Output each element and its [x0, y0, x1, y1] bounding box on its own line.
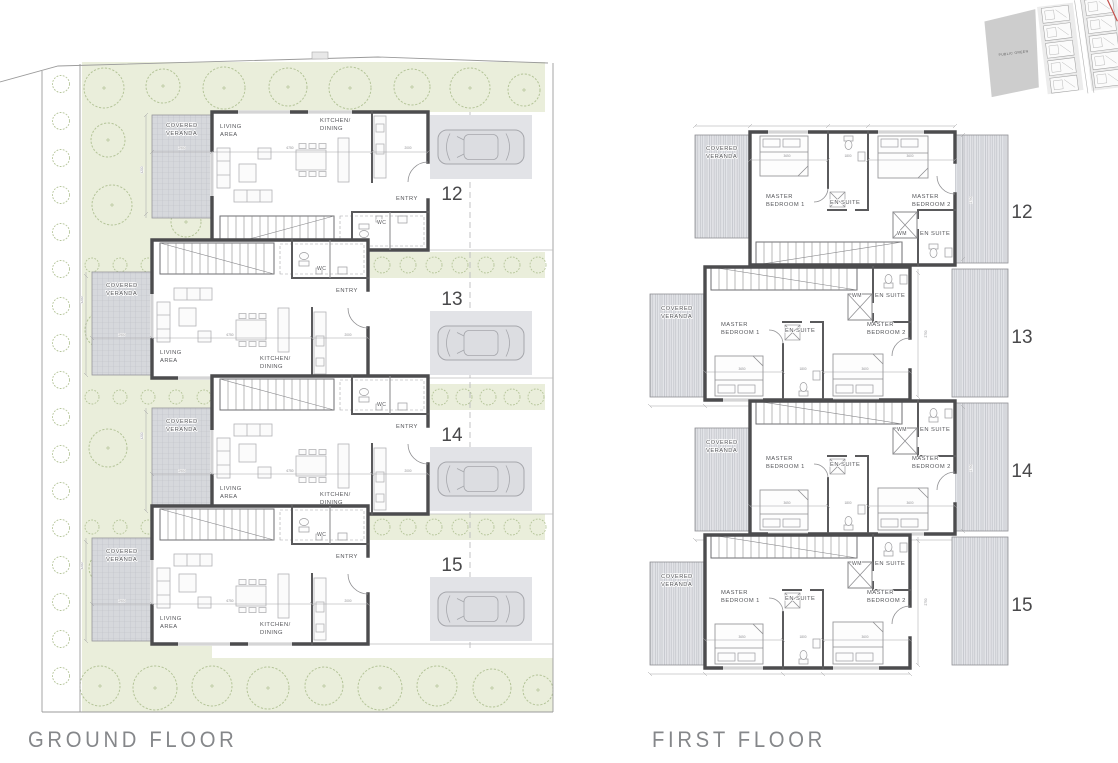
veranda-label: VERANDA: [106, 291, 137, 297]
bush-glyph: [53, 446, 70, 463]
map-building: [1091, 51, 1118, 70]
wc-label: WC: [317, 266, 326, 272]
car-icon: [438, 462, 524, 496]
bush-glyph: [53, 76, 70, 93]
master-bedroom1-label: MASTER: [721, 590, 748, 596]
veranda-label: VERANDA: [661, 314, 692, 320]
living-area-label: AREA: [160, 358, 178, 364]
dimension-label: 3600: [906, 154, 913, 158]
ff-unit: COVEREDVERANDAMASTERBEDROOM 1EN SUITEMAS…: [648, 267, 1033, 408]
balcony-deck: [952, 537, 1008, 665]
living-area-label: LIVING: [220, 486, 242, 492]
washing-machine-label: WM: [852, 293, 862, 299]
wc-label: WC: [377, 220, 386, 226]
veranda-label: COVERED: [706, 146, 738, 152]
hedge-strip: [370, 252, 545, 278]
ensuite-label: EN SUITE: [785, 328, 815, 334]
first-floor-units: COVEREDVERANDAMASTERBEDROOM 1EN SUITEMAS…: [648, 124, 1033, 676]
entry-label: ENTRY: [336, 554, 358, 560]
dimension-label: 3650: [783, 154, 790, 158]
dimension-label: 3650: [783, 501, 790, 505]
veranda-label: COVERED: [106, 549, 138, 555]
entry-label: ENTRY: [396, 424, 418, 430]
map-building: [1089, 33, 1118, 52]
unit-number: 12: [441, 184, 462, 205]
ensuite-label: EN SUITE: [830, 462, 860, 468]
dimension-label: 2000: [344, 599, 351, 603]
site-key-map: PUBLIC GREEN: [981, 0, 1118, 105]
dimension-label: 4200: [80, 296, 84, 303]
ff-unit: COVEREDVERANDAMASTERBEDROOM 1EN SUITEMAS…: [693, 401, 1033, 542]
unit-number: 13: [1011, 327, 1032, 348]
bush-glyph: [53, 520, 70, 537]
bush-glyph: [53, 113, 70, 130]
map-building: [1041, 5, 1070, 23]
master-bedroom1-label: MASTER: [721, 322, 748, 328]
kitchen-dining-label: KITCHEN/: [260, 356, 291, 362]
car-icon: [438, 592, 524, 626]
entry-label: ENTRY: [396, 196, 418, 202]
dimension-label: 2750: [969, 196, 973, 203]
unit-geometry: [693, 401, 965, 542]
balcony-deck: [952, 135, 1008, 263]
dimension-label: 2750: [924, 330, 928, 337]
dimension-label: 6750: [226, 599, 233, 603]
veranda-label: COVERED: [661, 574, 693, 580]
kitchen-dining-label: DINING: [260, 630, 283, 636]
bush-glyph: [53, 372, 70, 389]
ensuite-label: EN SUITE: [920, 427, 950, 433]
living-area-label: AREA: [160, 624, 178, 630]
bush-glyph: [53, 409, 70, 426]
dimension-label: 3650: [738, 367, 745, 371]
kitchen-dining-label: DINING: [260, 364, 283, 370]
master-bedroom2-label: MASTER: [867, 590, 894, 596]
veranda-label: COVERED: [106, 283, 138, 289]
veranda-label: COVERED: [661, 306, 693, 312]
veranda-label: VERANDA: [166, 131, 197, 137]
map-building: [1046, 40, 1075, 58]
map-building: [1093, 69, 1118, 88]
ensuite-label: EN SUITE: [920, 231, 950, 237]
ensuite-label: EN SUITE: [785, 596, 815, 602]
unit-number: 14: [441, 425, 463, 446]
dimension-label: 2000: [344, 333, 351, 337]
utility-box: [312, 52, 328, 59]
dimension-label: 6750: [286, 469, 293, 473]
washing-machine-label: WM: [852, 561, 862, 567]
bush-glyph: [53, 150, 70, 167]
washing-machine-label: WM: [897, 231, 907, 237]
master-bedroom2-label: BEDROOM 2: [912, 464, 951, 470]
master-bedroom1-label: BEDROOM 1: [766, 464, 805, 470]
dimension-label: 2750: [969, 464, 973, 471]
living-area-label: AREA: [220, 494, 238, 500]
bush-glyph: [53, 224, 70, 241]
ground-floor-title: GROUND FLOOR: [28, 727, 237, 753]
ensuite-label: EN SUITE: [875, 561, 905, 567]
map-building: [1048, 58, 1077, 76]
unit-geometry: [648, 535, 920, 676]
unit-number: 15: [441, 555, 462, 576]
master-bedroom1-label: BEDROOM 1: [721, 598, 760, 604]
plans-canvas: COVEREDVERANDALIVINGAREAKITCHEN/DININGEN…: [0, 0, 1118, 763]
site-map-buildings: [1037, 0, 1118, 98]
dimension-label: 1800: [844, 501, 851, 505]
wc-label: WC: [377, 402, 386, 408]
master-bedroom1-label: MASTER: [766, 456, 793, 462]
kitchen-dining-label: KITCHEN/: [260, 622, 291, 628]
master-bedroom1-label: BEDROOM 1: [766, 202, 805, 208]
hedge-strip: [430, 384, 545, 410]
master-bedroom1-label: BEDROOM 1: [721, 330, 760, 336]
dimension-label: 3600: [906, 501, 913, 505]
ensuite-label: EN SUITE: [830, 200, 860, 206]
unit-number: 15: [1011, 595, 1032, 616]
dimension-label: 2900: [178, 146, 185, 150]
map-building: [1043, 23, 1072, 41]
master-bedroom2-label: BEDROOM 2: [912, 202, 951, 208]
master-bedroom2-label: MASTER: [867, 322, 894, 328]
master-bedroom1-label: MASTER: [766, 194, 793, 200]
dimension-label: 2000: [404, 146, 411, 150]
dimension-label: 6750: [226, 333, 233, 337]
hedge-strip: [370, 514, 545, 540]
unit-number: 12: [1011, 202, 1032, 223]
bush-glyph: [53, 187, 70, 204]
dimension-label: 3650: [738, 635, 745, 639]
dimension-label: 2000: [404, 469, 411, 473]
bush-glyph: [53, 261, 70, 278]
bush-glyph: [53, 335, 70, 352]
dimension-label: 1800: [799, 635, 806, 639]
dimension-label: 4200: [140, 432, 144, 439]
kitchen-dining-label: KITCHEN/: [320, 492, 351, 498]
master-bedroom2-label: MASTER: [912, 456, 939, 462]
dimension-label: 6750: [286, 146, 293, 150]
unit-number: 13: [441, 289, 462, 310]
living-area-label: LIVING: [160, 350, 182, 356]
map-building: [1087, 15, 1117, 34]
veranda-label: VERANDA: [706, 448, 737, 454]
dimension-label: 2750: [924, 598, 928, 605]
veranda-label: COVERED: [706, 440, 738, 446]
balcony-deck: [952, 403, 1008, 531]
architectural-sheet: COVEREDVERANDALIVINGAREAKITCHEN/DININGEN…: [0, 0, 1118, 763]
master-bedroom2-label: BEDROOM 2: [867, 330, 906, 336]
dimension-label: 3600: [861, 635, 868, 639]
master-bedroom2-label: MASTER: [912, 194, 939, 200]
dimension-label: 2900: [178, 469, 185, 473]
veranda-label: VERANDA: [106, 557, 137, 563]
bush-glyph: [53, 631, 70, 648]
entry-label: ENTRY: [336, 288, 358, 294]
dimension-label: 1800: [799, 367, 806, 371]
first-floor-title: FIRST FLOOR: [652, 727, 826, 753]
ff-unit: COVEREDVERANDAMASTERBEDROOM 1EN SUITEMAS…: [648, 535, 1033, 676]
living-area-label: LIVING: [160, 616, 182, 622]
dimension-label: 2900: [118, 599, 125, 603]
balcony-deck: [952, 269, 1008, 397]
ensuite-label: EN SUITE: [875, 293, 905, 299]
dimension-label: 2900: [118, 333, 125, 337]
map-building: [1050, 75, 1079, 93]
unit-number: 14: [1011, 461, 1033, 482]
bush-glyph: [53, 483, 70, 500]
master-bedroom2-label: BEDROOM 2: [867, 598, 906, 604]
veranda-label: VERANDA: [166, 427, 197, 433]
veranda-label: COVERED: [166, 123, 198, 129]
living-area-label: AREA: [220, 132, 238, 138]
kitchen-dining-label: KITCHEN/: [320, 118, 351, 124]
dimension-label: 1800: [844, 154, 851, 158]
unit-geometry: [648, 267, 920, 408]
bush-glyph: [53, 557, 70, 574]
veranda-label: VERANDA: [706, 154, 737, 160]
car-icon: [438, 326, 524, 360]
wc-label: WC: [317, 532, 326, 538]
bush-glyph: [53, 298, 70, 315]
dimension-label: 3600: [861, 367, 868, 371]
dimension-label: 4200: [140, 166, 144, 173]
kitchen-dining-label: DINING: [320, 126, 343, 132]
washing-machine-label: WM: [897, 427, 907, 433]
ff-unit: COVEREDVERANDAMASTERBEDROOM 1EN SUITEMAS…: [693, 124, 1033, 265]
living-area-label: LIVING: [220, 124, 242, 130]
bush-glyph: [53, 668, 70, 685]
bush-glyph: [53, 594, 70, 611]
car-icon: [438, 130, 524, 164]
veranda-label: VERANDA: [661, 582, 692, 588]
veranda-label: COVERED: [166, 419, 198, 425]
dimension-label: 4200: [80, 562, 84, 569]
